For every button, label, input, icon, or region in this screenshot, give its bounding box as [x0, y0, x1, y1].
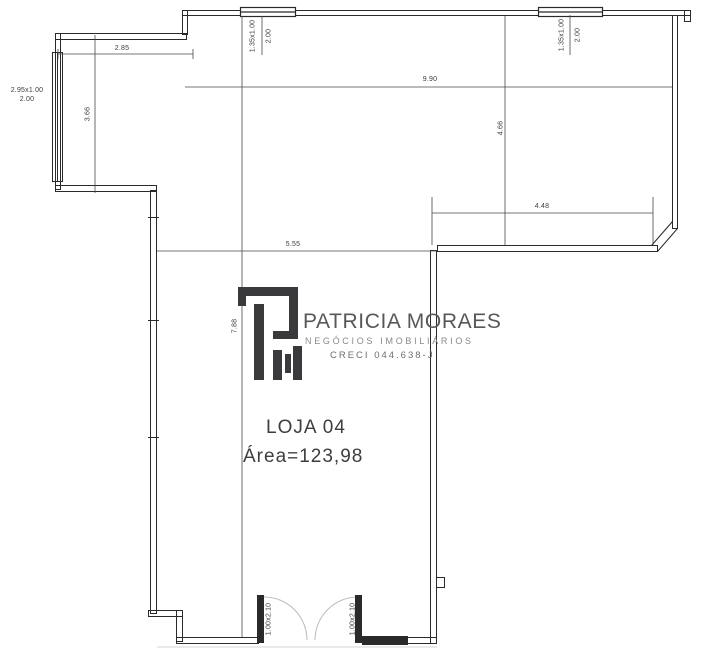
dim-label-bay-height: 3.66 — [85, 107, 92, 121]
logo-mark — [238, 287, 302, 380]
window-label-top-left-sill: 2.00 — [266, 29, 273, 43]
window-label-top-left-size: 1.35x1.00 — [250, 20, 257, 53]
room-name: LOJA 04 — [266, 417, 346, 439]
dim-label-upper-right-width: 4.48 — [535, 203, 549, 211]
window-label-top-right-size: 1.35x1.00 — [559, 19, 566, 52]
window-label-top-right-sill: 2.00 — [575, 28, 582, 42]
dim-label-upper-width: 9.90 — [423, 76, 437, 84]
dim-label-top-left-width: 2.85 — [115, 45, 129, 53]
logo-creci: CRECI 044.638-J — [330, 350, 434, 361]
door-label-left: 1.00x2.10 — [266, 603, 273, 636]
logo-tagline: NEGÓCIOS IMOBILIÁRIOS — [305, 336, 474, 346]
window-label-bay-sill: 2.00 — [20, 96, 34, 104]
logo-name: PATRICIA MORAES — [303, 310, 501, 334]
room-area: Área=123,98 — [243, 446, 363, 468]
dim-label-upper-height: 4.66 — [498, 121, 505, 135]
dim-label-lower-width: 5.55 — [286, 241, 300, 249]
dim-label-lower-height: 7.88 — [232, 319, 239, 333]
floor-plan-page: 2.85 3.66 9.90 4.66 4.48 5.55 7.88 2.95x… — [0, 0, 721, 650]
door-label-right: 1.00x2.10 — [350, 603, 357, 636]
window-label-bay-size: 2.95x1.00 — [11, 87, 44, 95]
door-jambs — [257, 595, 408, 645]
